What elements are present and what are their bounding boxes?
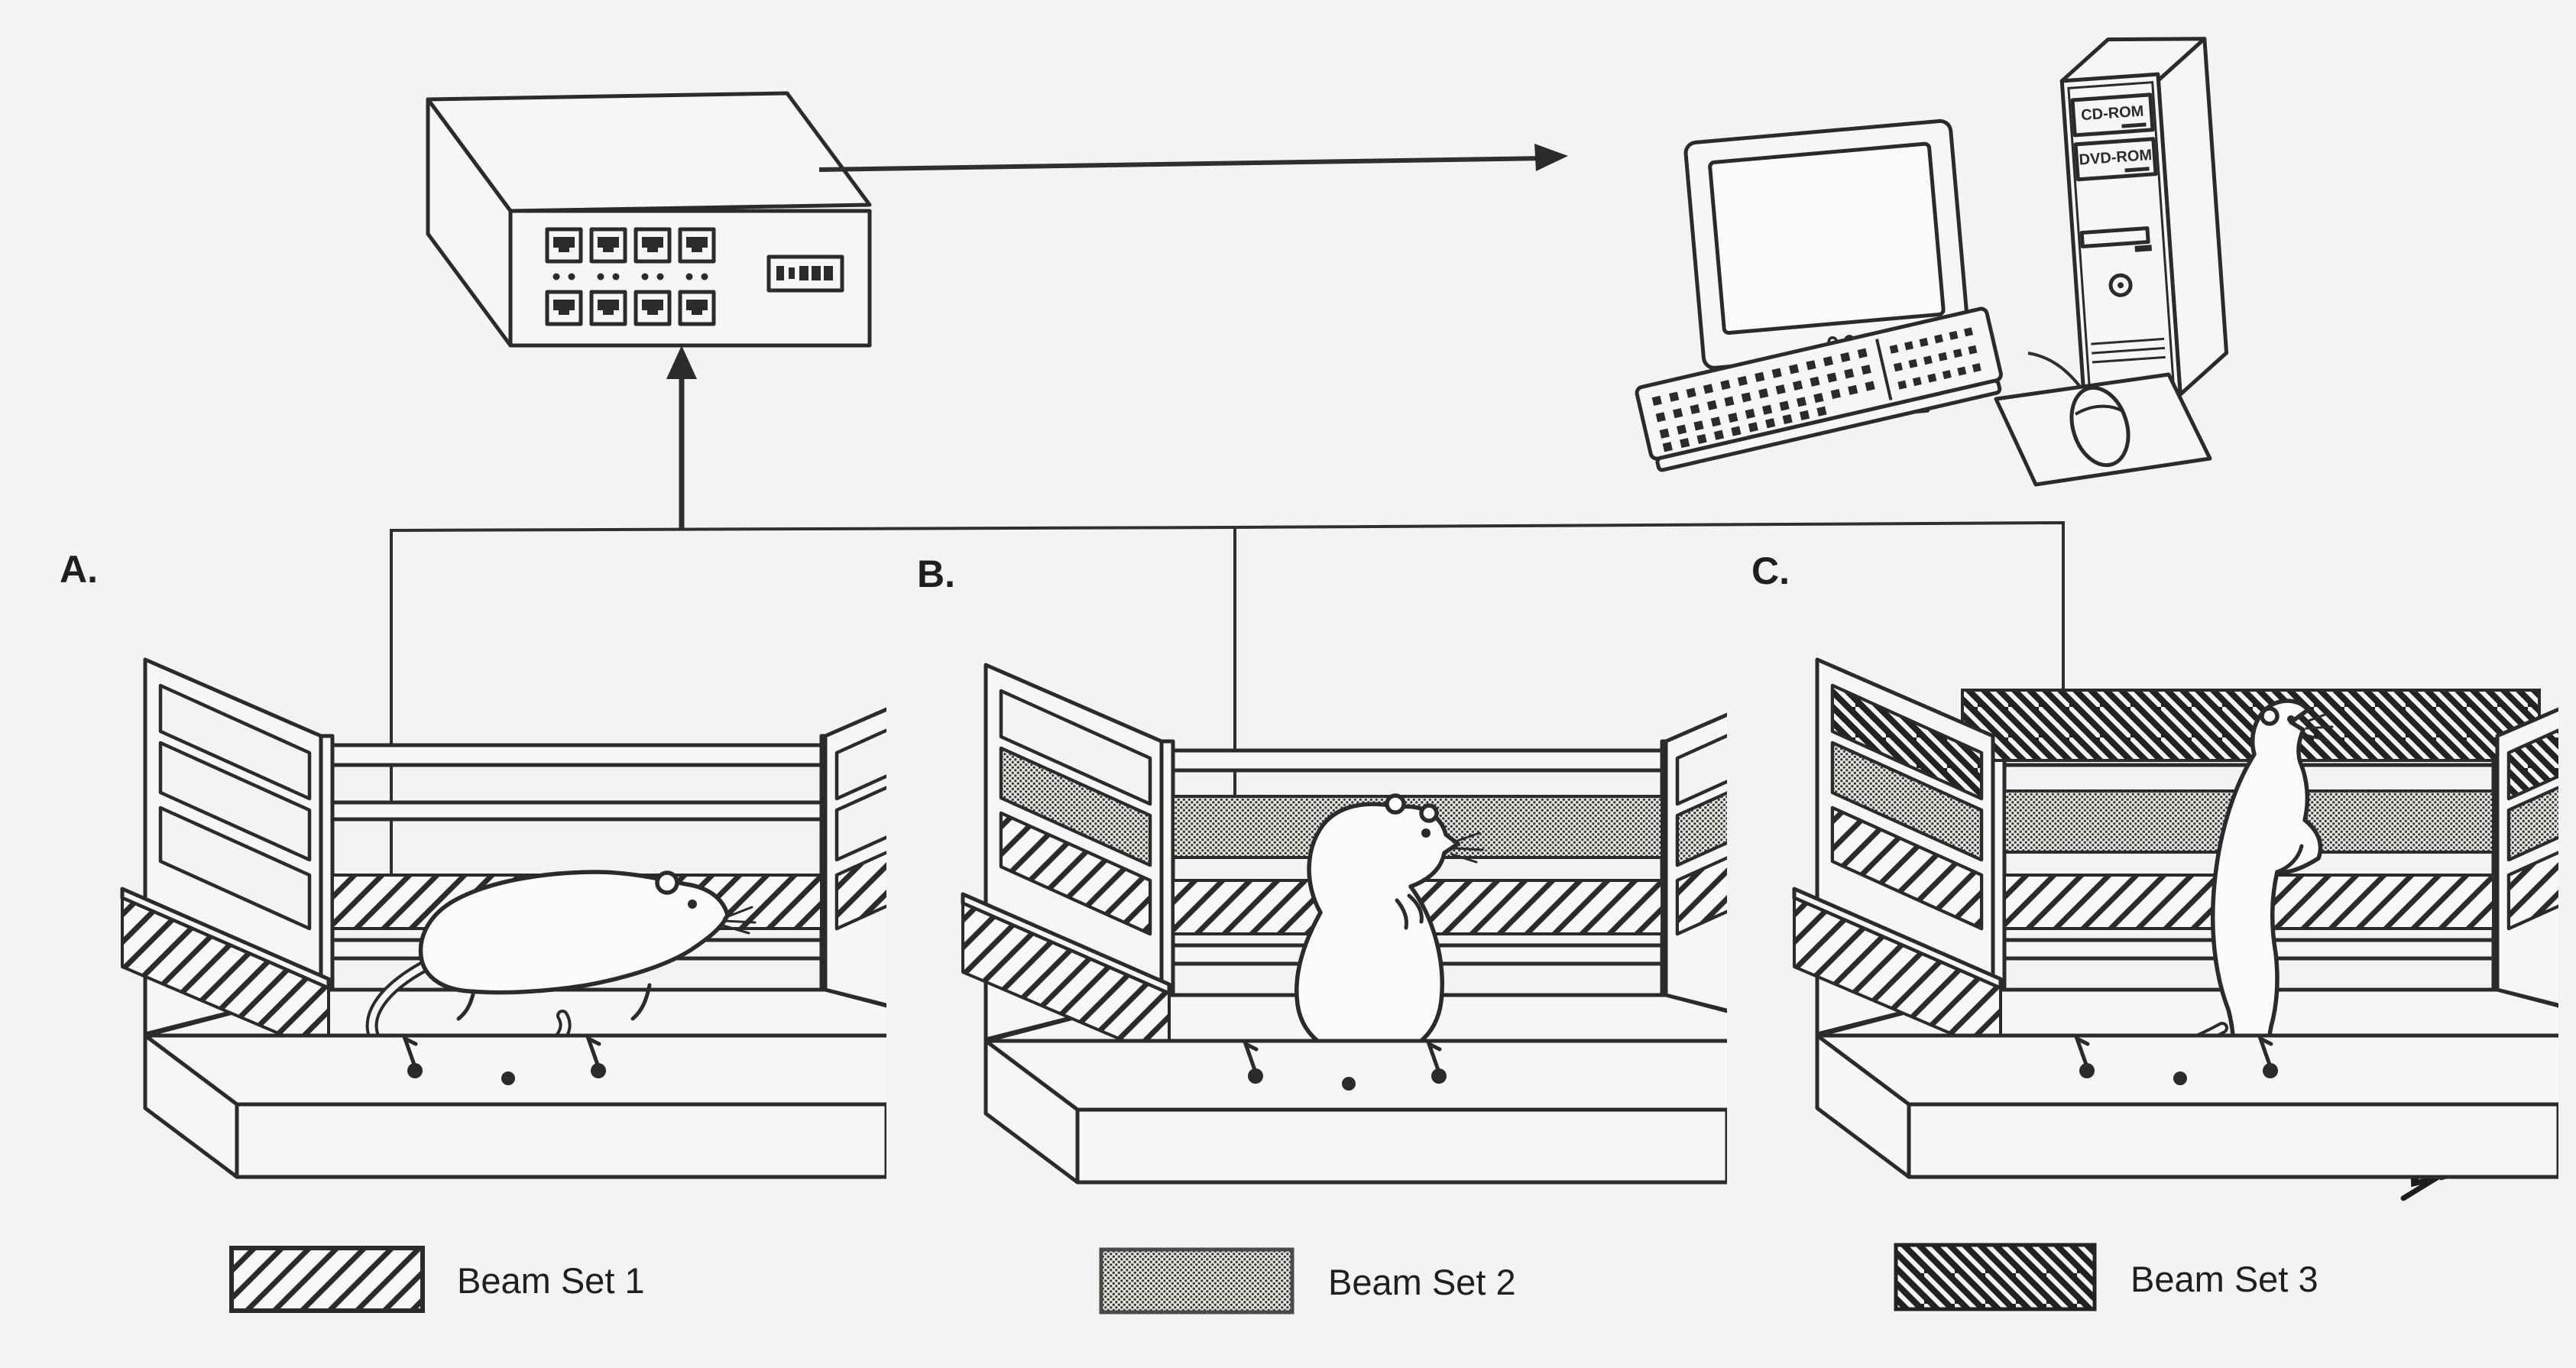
rat-ear — [657, 873, 677, 893]
rat-eye — [688, 900, 697, 909]
rat-eye — [2287, 715, 2295, 723]
panel-label-b: B. — [917, 552, 955, 596]
base-tray — [986, 1041, 1727, 1182]
mid-rail — [332, 802, 821, 819]
computer-tower: CD-ROM DVD-ROM — [2059, 33, 2229, 401]
activity-chamber — [902, 651, 1727, 1201]
top-rail — [1173, 750, 1662, 770]
activity-chamber-panel-a — [61, 646, 886, 1196]
legend-label-beam-set-1: Beam Set 1 — [457, 1259, 645, 1302]
dvd-drive: DVD-ROM — [2075, 139, 2156, 180]
legend-swatch-beam-set-2 — [1099, 1247, 1294, 1315]
base-tray — [1817, 1036, 2558, 1177]
rat-ear — [1421, 806, 1437, 821]
right-arrow-icon — [1534, 144, 1568, 171]
legend-swatch-beam-set-3 — [1894, 1243, 2097, 1311]
activity-chamber-panel-c — [1733, 646, 2558, 1196]
counter-display — [769, 257, 842, 290]
sensor-dot — [501, 1071, 515, 1085]
beam-set-3-strip — [1962, 690, 2539, 760]
sensor-dot — [1342, 1077, 1356, 1091]
sensor-dot — [2173, 1071, 2187, 1085]
rat-ear — [1387, 796, 1404, 812]
up-arrow-icon — [666, 345, 697, 379]
mouse-cable — [2028, 353, 2080, 387]
right-wall — [825, 660, 886, 1034]
figure-canvas: CD-ROM DVD-ROM — [0, 0, 2576, 1368]
legend-swatch-beam-set-1 — [229, 1246, 425, 1313]
legend-label-beam-set-2: Beam Set 2 — [1328, 1261, 1516, 1303]
panel-label-c: C. — [1751, 549, 1790, 593]
right-wall — [1666, 665, 1727, 1039]
cd-drive: CD-ROM — [2072, 95, 2153, 135]
panel-label-a: A. — [60, 547, 98, 592]
rat-eye — [1421, 828, 1431, 838]
top-rail — [332, 745, 821, 765]
activity-chamber-panel-b — [902, 651, 1727, 1201]
legend-label-beam-set-3: Beam Set 3 — [2130, 1258, 2318, 1300]
rat-ear — [2262, 708, 2277, 724]
activity-chamber — [61, 646, 886, 1196]
computer: CD-ROM DVD-ROM — [1635, 33, 2229, 485]
activity-chamber — [1733, 646, 2558, 1196]
interface-box — [428, 93, 870, 345]
base-tray — [145, 1036, 886, 1177]
box-to-computer-arrow — [819, 144, 1568, 171]
